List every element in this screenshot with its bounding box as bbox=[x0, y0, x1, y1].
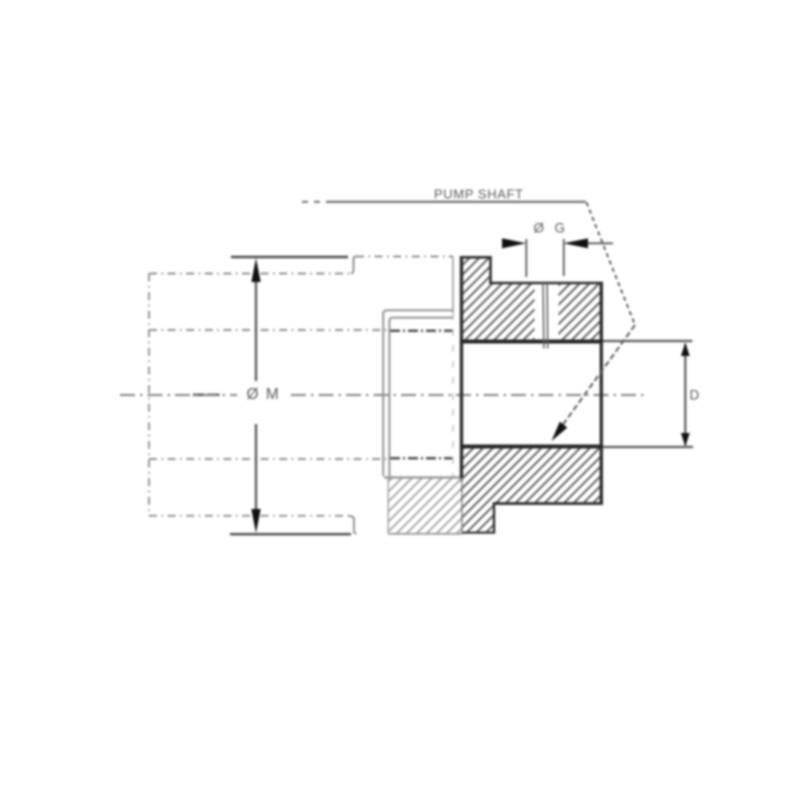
svg-text:D: D bbox=[690, 388, 700, 403]
svg-text:Ø G: Ø G bbox=[534, 221, 569, 236]
svg-text:Ø M: Ø M bbox=[247, 386, 281, 403]
svg-text:PUMP SHAFT: PUMP SHAFT bbox=[434, 187, 524, 202]
